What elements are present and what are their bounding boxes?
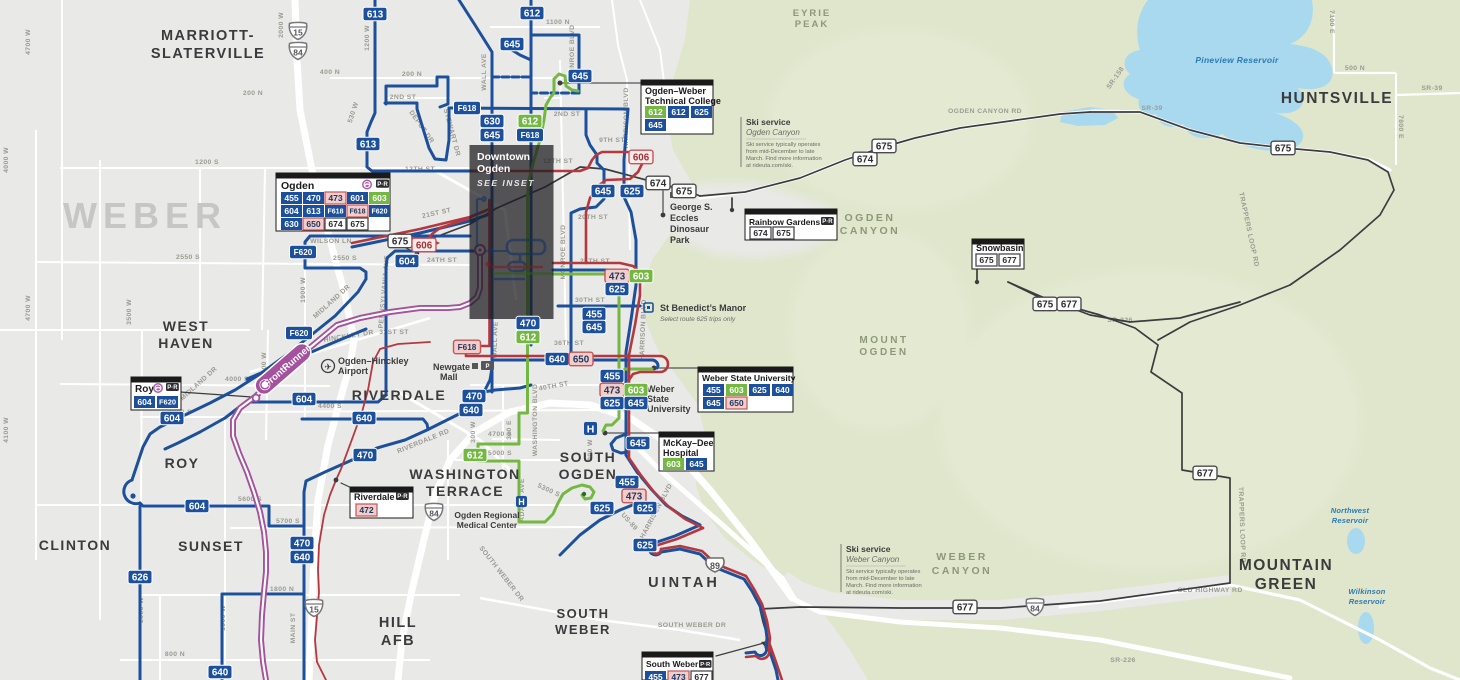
svg-text:603: 603 <box>628 386 645 397</box>
svg-text:Newgate: Newgate <box>433 362 470 372</box>
svg-text:4400 S: 4400 S <box>318 403 342 410</box>
svg-text:HUNTSVILLE: HUNTSVILLE <box>1281 90 1393 107</box>
svg-text:606: 606 <box>633 153 650 164</box>
svg-text:473: 473 <box>328 193 343 203</box>
svg-text:473: 473 <box>671 672 686 680</box>
svg-text:2ND ST: 2ND ST <box>390 94 417 101</box>
svg-text:650: 650 <box>573 355 590 366</box>
svg-text:3500 W: 3500 W <box>126 299 133 325</box>
svg-text:Weber Canyon: Weber Canyon <box>846 555 900 564</box>
svg-text:4000 W: 4000 W <box>3 147 10 173</box>
svg-text:Reservoir: Reservoir <box>1349 597 1386 606</box>
svg-text:675: 675 <box>979 255 994 265</box>
svg-text:455: 455 <box>648 672 663 680</box>
svg-text:675: 675 <box>676 187 693 198</box>
svg-text:Riverdale: Riverdale <box>354 492 395 502</box>
svg-text:Medical Center: Medical Center <box>457 520 518 530</box>
svg-text:George S.: George S. <box>670 202 713 212</box>
svg-text:630: 630 <box>484 117 501 128</box>
svg-text:640: 640 <box>463 406 480 417</box>
svg-text:625: 625 <box>604 399 621 410</box>
svg-text:626: 626 <box>132 573 149 584</box>
svg-text:645: 645 <box>628 399 645 410</box>
svg-text:640: 640 <box>356 414 373 425</box>
svg-text:300 W: 300 W <box>470 421 477 443</box>
svg-text:650: 650 <box>306 219 321 229</box>
svg-text:604: 604 <box>284 206 299 216</box>
svg-text:MOUNTAIN: MOUNTAIN <box>1239 557 1333 574</box>
svg-text:604: 604 <box>137 397 152 407</box>
svg-text:455: 455 <box>586 310 603 321</box>
svg-text:McKay–Dee: McKay–Dee <box>663 438 714 448</box>
svg-text:675: 675 <box>392 237 409 248</box>
svg-text:PEAK: PEAK <box>795 19 829 30</box>
svg-text:7100 E: 7100 E <box>1328 10 1335 34</box>
svg-text:625: 625 <box>637 504 654 515</box>
svg-text:Hospital: Hospital <box>663 448 699 458</box>
svg-text:470: 470 <box>520 319 537 330</box>
svg-text:WEBER: WEBER <box>63 195 227 236</box>
svg-text:F618: F618 <box>350 209 366 216</box>
svg-text:645: 645 <box>630 439 647 450</box>
svg-text:CANYON: CANYON <box>840 225 901 237</box>
svg-text:1200 S: 1200 S <box>195 159 219 166</box>
svg-text:at rideuta.com/ski.: at rideuta.com/ski. <box>846 590 893 596</box>
svg-text:P·R: P·R <box>822 219 833 225</box>
svg-text:HAVEN: HAVEN <box>158 335 213 351</box>
svg-text:675: 675 <box>1037 300 1054 311</box>
svg-text:HILL: HILL <box>379 615 417 631</box>
svg-text:P·R: P·R <box>397 494 408 500</box>
svg-text:84: 84 <box>1030 604 1040 614</box>
svg-text:H: H <box>587 424 595 436</box>
svg-text:500 N: 500 N <box>1345 65 1365 72</box>
svg-text:MOUNT: MOUNT <box>859 335 908 346</box>
svg-text:9TH ST: 9TH ST <box>599 137 625 144</box>
svg-text:GREEN: GREEN <box>1255 576 1318 593</box>
svg-text:Northwest: Northwest <box>1331 506 1370 515</box>
svg-text:Wilkinson: Wilkinson <box>1348 587 1385 596</box>
svg-text:Ski service: Ski service <box>746 117 791 127</box>
svg-text:F618: F618 <box>458 104 477 113</box>
svg-text:675: 675 <box>776 228 791 238</box>
svg-text:WEBER: WEBER <box>555 622 611 637</box>
svg-text:F620: F620 <box>294 248 313 257</box>
svg-text:OGDEN: OGDEN <box>559 466 618 482</box>
svg-text:800 N: 800 N <box>165 651 185 658</box>
svg-text:675: 675 <box>876 142 893 153</box>
svg-text:640: 640 <box>212 668 229 679</box>
svg-text:677: 677 <box>1002 255 1017 265</box>
svg-text:640: 640 <box>775 385 790 395</box>
svg-text:Weber State University: Weber State University <box>702 373 796 383</box>
svg-text:2ND ST: 2ND ST <box>554 111 581 118</box>
svg-text:630: 630 <box>284 219 299 229</box>
svg-text:89: 89 <box>710 561 720 571</box>
svg-text:5000 S: 5000 S <box>488 450 512 457</box>
svg-text:Dinosaur: Dinosaur <box>670 224 710 234</box>
svg-text:400 N: 400 N <box>320 69 340 76</box>
svg-text:Mall: Mall <box>440 372 458 382</box>
svg-text:Ogden Canyon: Ogden Canyon <box>746 128 800 137</box>
svg-text:300 E: 300 E <box>506 420 513 440</box>
svg-text:St Benedict’s Manor: St Benedict’s Manor <box>660 303 747 313</box>
svg-text:30TH ST: 30TH ST <box>575 297 605 304</box>
svg-text:455: 455 <box>706 385 721 395</box>
svg-text:OGDEN CANYON RD: OGDEN CANYON RD <box>948 108 1022 115</box>
svg-text:SR-39: SR-39 <box>1421 85 1442 92</box>
svg-text:SOUTH WEBER DR: SOUTH WEBER DR <box>658 622 726 629</box>
svg-text:F618: F618 <box>328 209 344 216</box>
svg-text:613: 613 <box>306 206 321 216</box>
svg-text:WASHINGTON: WASHINGTON <box>409 466 520 482</box>
svg-text:Pineview Reservoir: Pineview Reservoir <box>1195 55 1279 65</box>
svg-text:Technical College: Technical College <box>645 96 721 106</box>
svg-text:1900 W: 1900 W <box>300 277 307 303</box>
svg-text:677: 677 <box>1061 300 1078 311</box>
svg-text:625: 625 <box>694 107 709 117</box>
svg-text:Reservoir: Reservoir <box>1332 516 1369 525</box>
svg-text:455: 455 <box>619 478 636 489</box>
svg-text:CANYON: CANYON <box>932 565 993 577</box>
svg-text:645: 645 <box>595 187 612 198</box>
svg-text:2000 W: 2000 W <box>278 12 285 38</box>
svg-text:from mid-December to late: from mid-December to late <box>846 576 915 582</box>
svg-text:WEST: WEST <box>163 318 209 334</box>
svg-text:Ogden–Weber: Ogden–Weber <box>645 86 706 96</box>
svg-text:645: 645 <box>484 131 501 142</box>
svg-text:604: 604 <box>189 502 206 513</box>
svg-text:SEE INSET: SEE INSET <box>477 178 535 188</box>
svg-text:Roy: Roy <box>135 384 154 395</box>
svg-text:MARRIOTT-: MARRIOTT- <box>161 28 255 44</box>
svg-text:640: 640 <box>549 355 566 366</box>
svg-text:MAIN ST: MAIN ST <box>290 612 297 643</box>
svg-text:Ogden: Ogden <box>477 163 510 175</box>
svg-text:645: 645 <box>648 120 663 130</box>
svg-text:Ogden Regional: Ogden Regional <box>454 510 519 520</box>
svg-text:84: 84 <box>429 509 439 519</box>
svg-text:Park: Park <box>670 235 691 245</box>
svg-text:SR-39: SR-39 <box>1141 105 1162 112</box>
svg-text:612: 612 <box>467 451 484 462</box>
svg-text:84: 84 <box>293 48 303 58</box>
svg-text:625: 625 <box>594 504 611 515</box>
svg-text:625: 625 <box>637 541 654 552</box>
svg-text:CLINTON: CLINTON <box>39 537 111 553</box>
svg-text:1100 N: 1100 N <box>546 19 570 26</box>
svg-text:UINTAH: UINTAH <box>648 575 720 591</box>
svg-text:677: 677 <box>957 603 974 614</box>
svg-text:31ST ST: 31ST ST <box>379 329 409 336</box>
svg-text:Eccles: Eccles <box>670 213 699 223</box>
svg-text:650: 650 <box>729 398 744 408</box>
svg-text:455: 455 <box>604 372 621 383</box>
svg-text:F618: F618 <box>458 343 477 352</box>
svg-text:601: 601 <box>350 193 365 203</box>
svg-text:2550 S: 2550 S <box>333 255 357 262</box>
svg-text:4700 W: 4700 W <box>25 29 32 55</box>
svg-text:603: 603 <box>666 459 681 469</box>
svg-text:612: 612 <box>524 9 541 20</box>
svg-text:675: 675 <box>1275 144 1292 155</box>
svg-text:470: 470 <box>306 193 321 203</box>
svg-text:1200 W: 1200 W <box>364 25 371 51</box>
svg-text:P·R: P·R <box>377 181 388 188</box>
svg-text:470: 470 <box>466 392 483 403</box>
svg-text:from mid-December to late: from mid-December to late <box>746 149 815 155</box>
svg-text:RIVERDALE: RIVERDALE <box>352 387 446 403</box>
svg-text:H: H <box>518 497 525 507</box>
svg-text:✈: ✈ <box>324 362 332 372</box>
svg-text:612: 612 <box>522 117 539 128</box>
svg-text:SOUTH: SOUTH <box>560 449 617 465</box>
svg-text:200 N: 200 N <box>402 71 422 78</box>
svg-text:F620: F620 <box>290 329 309 338</box>
svg-text:674: 674 <box>650 179 667 190</box>
svg-text:OGDEN: OGDEN <box>844 212 895 224</box>
svg-text:645: 645 <box>586 323 603 334</box>
svg-text:625: 625 <box>752 385 767 395</box>
svg-text:20TH ST: 20TH ST <box>578 214 608 221</box>
svg-text:OGDEN: OGDEN <box>859 347 908 358</box>
svg-text:675: 675 <box>350 219 365 229</box>
svg-text:24TH ST: 24TH ST <box>427 257 457 264</box>
svg-text:674: 674 <box>753 228 768 238</box>
svg-text:OLD HIGHWAY RD: OLD HIGHWAY RD <box>1177 587 1242 594</box>
svg-text:7800 E: 7800 E <box>1397 115 1404 139</box>
svg-text:603: 603 <box>633 272 650 283</box>
svg-text:Ogden: Ogden <box>281 180 314 192</box>
svg-text:645: 645 <box>504 40 521 51</box>
svg-text:604: 604 <box>296 395 313 406</box>
svg-text:674: 674 <box>857 155 874 166</box>
svg-text:SLATERVILLE: SLATERVILLE <box>151 46 265 62</box>
svg-text:470: 470 <box>357 451 374 462</box>
svg-text:Downtown: Downtown <box>477 151 530 163</box>
svg-text:674: 674 <box>328 219 343 229</box>
svg-text:P: P <box>485 364 489 370</box>
svg-text:University: University <box>647 404 691 414</box>
svg-text:at rideuta.com/ski.: at rideuta.com/ski. <box>746 163 793 169</box>
svg-text:613: 613 <box>367 10 384 21</box>
svg-text:March. Find more information: March. Find more information <box>746 156 822 162</box>
svg-text:WEBER: WEBER <box>936 551 988 563</box>
svg-text:470: 470 <box>294 539 311 550</box>
svg-text:15: 15 <box>309 605 319 615</box>
svg-text:2550 S: 2550 S <box>176 254 200 261</box>
svg-text:640: 640 <box>294 553 311 564</box>
svg-text:645: 645 <box>572 72 589 83</box>
svg-text:473: 473 <box>604 386 621 397</box>
svg-text:ROY: ROY <box>165 455 200 471</box>
svg-text:455: 455 <box>284 193 299 203</box>
svg-text:SUNSET: SUNSET <box>178 538 244 554</box>
svg-text:F618: F618 <box>521 131 540 140</box>
svg-text:Ski service: Ski service <box>846 544 891 554</box>
svg-text:36TH ST: 36TH ST <box>554 340 584 347</box>
svg-text:625: 625 <box>609 285 626 296</box>
svg-text:F620: F620 <box>372 209 388 216</box>
svg-text:WILSON LN: WILSON LN <box>310 238 352 245</box>
svg-text:4700 W: 4700 W <box>25 295 32 321</box>
svg-text:612: 612 <box>520 333 537 344</box>
svg-text:Airport: Airport <box>338 366 368 376</box>
svg-text:603: 603 <box>729 385 744 395</box>
svg-text:SR-226: SR-226 <box>1110 657 1135 664</box>
svg-text:603: 603 <box>372 193 387 203</box>
svg-text:4100 W: 4100 W <box>3 417 10 443</box>
svg-text:677: 677 <box>694 672 709 680</box>
svg-text:Select route 625 trips only: Select route 625 trips only <box>660 316 736 323</box>
svg-text:Snowbasin: Snowbasin <box>976 243 1024 253</box>
svg-text:473: 473 <box>609 272 626 283</box>
svg-text:677: 677 <box>1197 469 1214 480</box>
svg-text:F620: F620 <box>159 398 176 407</box>
svg-text:P·R: P·R <box>167 385 178 391</box>
svg-text:612: 612 <box>671 107 686 117</box>
svg-text:604: 604 <box>399 257 416 268</box>
svg-text:645: 645 <box>706 398 721 408</box>
svg-text:200 N: 200 N <box>243 90 263 97</box>
svg-text:State: State <box>647 394 669 404</box>
svg-text:Rainbow Gardens: Rainbow Gardens <box>749 217 821 227</box>
svg-text:Ogden–Hinckley: Ogden–Hinckley <box>338 356 409 366</box>
svg-text:625: 625 <box>624 187 641 198</box>
svg-text:SOUTH: SOUTH <box>557 606 610 621</box>
svg-text:WALL AVE: WALL AVE <box>481 53 488 91</box>
svg-text:South Weber: South Weber <box>646 659 699 669</box>
svg-text:15: 15 <box>293 28 303 38</box>
svg-text:1800 N: 1800 N <box>270 586 294 593</box>
svg-text:604: 604 <box>164 414 181 425</box>
svg-text:TERRACE: TERRACE <box>426 483 504 499</box>
svg-text:EYRIE: EYRIE <box>793 8 832 19</box>
svg-text:P·R: P·R <box>700 662 711 668</box>
svg-text:Ski service typically operates: Ski service typically operates <box>746 142 821 148</box>
svg-text:March. Find more information: March. Find more information <box>846 583 922 589</box>
svg-text:472: 472 <box>359 505 374 515</box>
svg-text:WASHINGTON BLVD: WASHINGTON BLVD <box>532 384 539 457</box>
svg-text:Ski service typically operates: Ski service typically operates <box>846 569 921 575</box>
svg-text:Weber: Weber <box>647 384 675 394</box>
svg-text:AFB: AFB <box>381 633 415 649</box>
svg-text:612: 612 <box>648 107 663 117</box>
svg-text:606: 606 <box>416 241 433 252</box>
svg-text:5700 S: 5700 S <box>276 518 300 525</box>
svg-text:613: 613 <box>360 140 377 151</box>
svg-text:645: 645 <box>689 459 704 469</box>
